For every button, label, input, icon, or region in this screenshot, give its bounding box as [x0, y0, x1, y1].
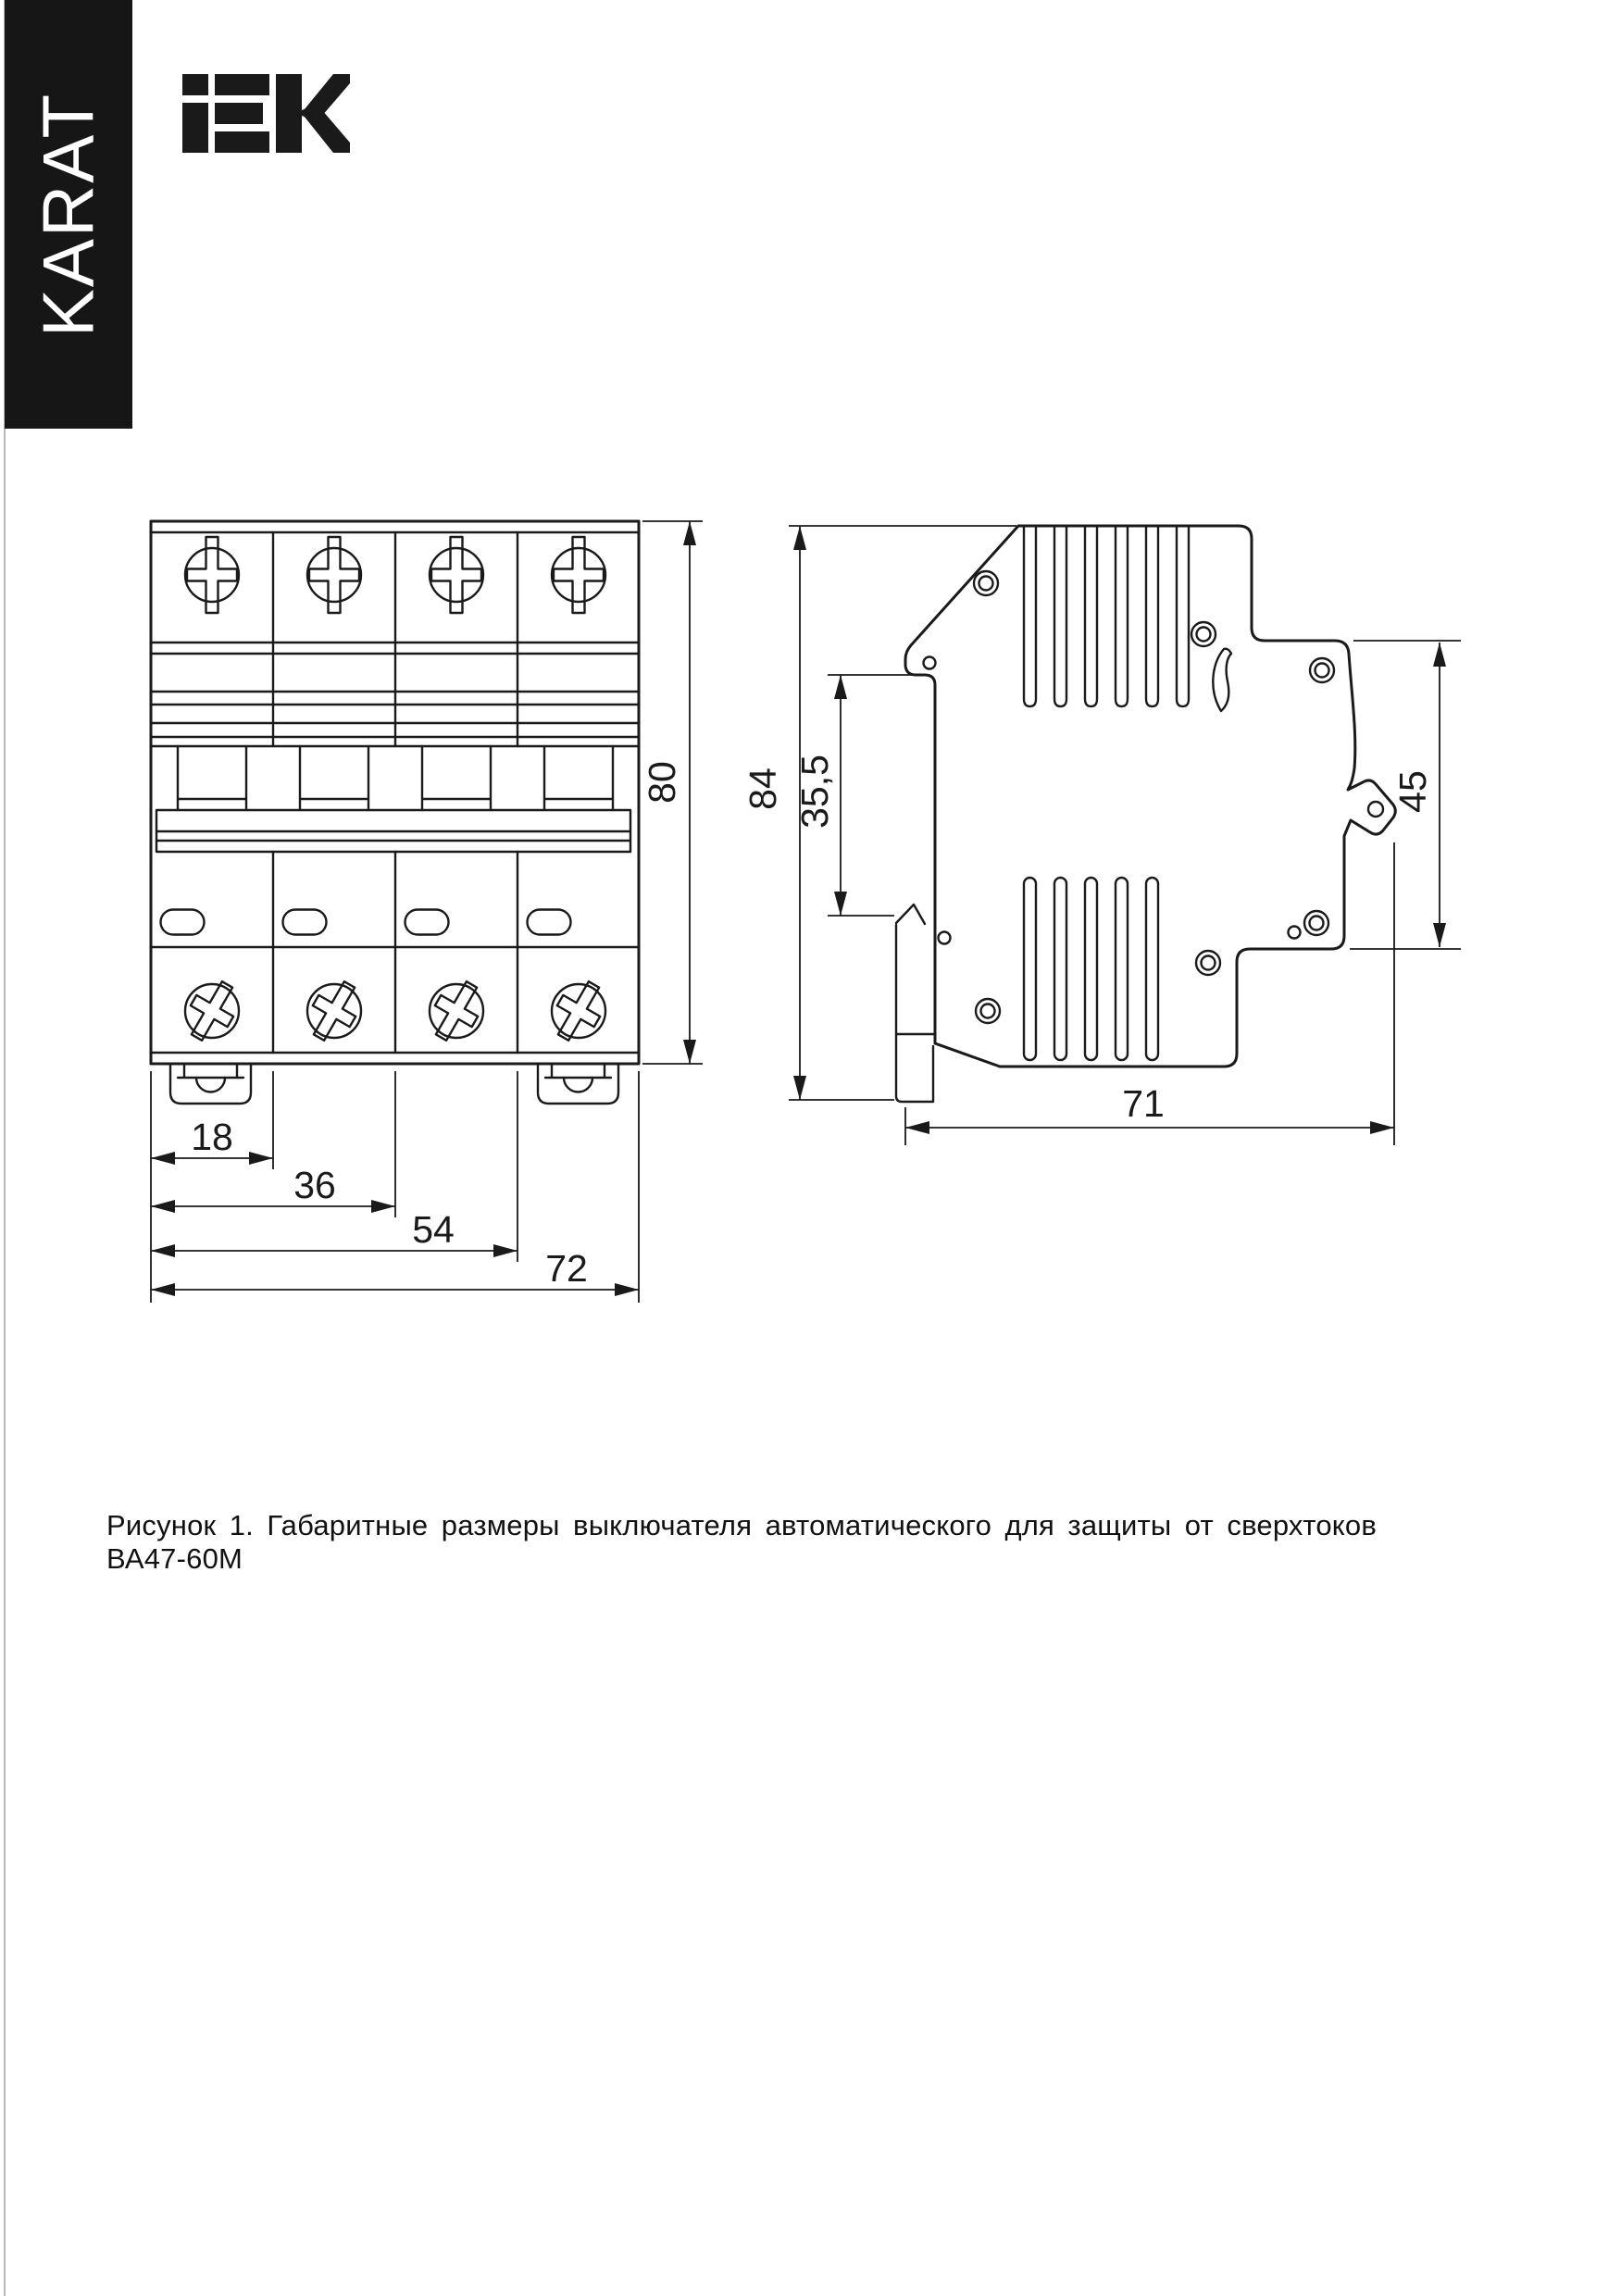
document-page: KARAT IEK	[0, 0, 1621, 2296]
dim-total-height-label: 84	[742, 767, 784, 810]
dim-total-width-label: 72	[545, 1247, 588, 1290]
dim-pole-width-label: 18	[191, 1116, 233, 1158]
dim-three-pole-label: 54	[412, 1208, 455, 1251]
side-view-dimensions: 84 35,5 45 71	[742, 526, 1461, 1145]
figure-caption: Рисунок 1. Габаритные размеры выключател…	[106, 1509, 1377, 1576]
side-view-drawing	[896, 526, 1395, 1102]
front-view-drawing	[151, 521, 639, 1104]
dim-front-height-label: 45	[1391, 770, 1434, 813]
dim-depth-label: 71	[1122, 1082, 1165, 1125]
dim-two-pole-label: 36	[293, 1164, 336, 1206]
dimension-drawing: 80 18 36 54 72	[0, 0, 1621, 2296]
front-view-dimensions: 80 18 36 54 72	[151, 521, 703, 1303]
dim-height-label: 80	[641, 761, 683, 804]
dim-din-offset-label: 35,5	[793, 755, 836, 829]
